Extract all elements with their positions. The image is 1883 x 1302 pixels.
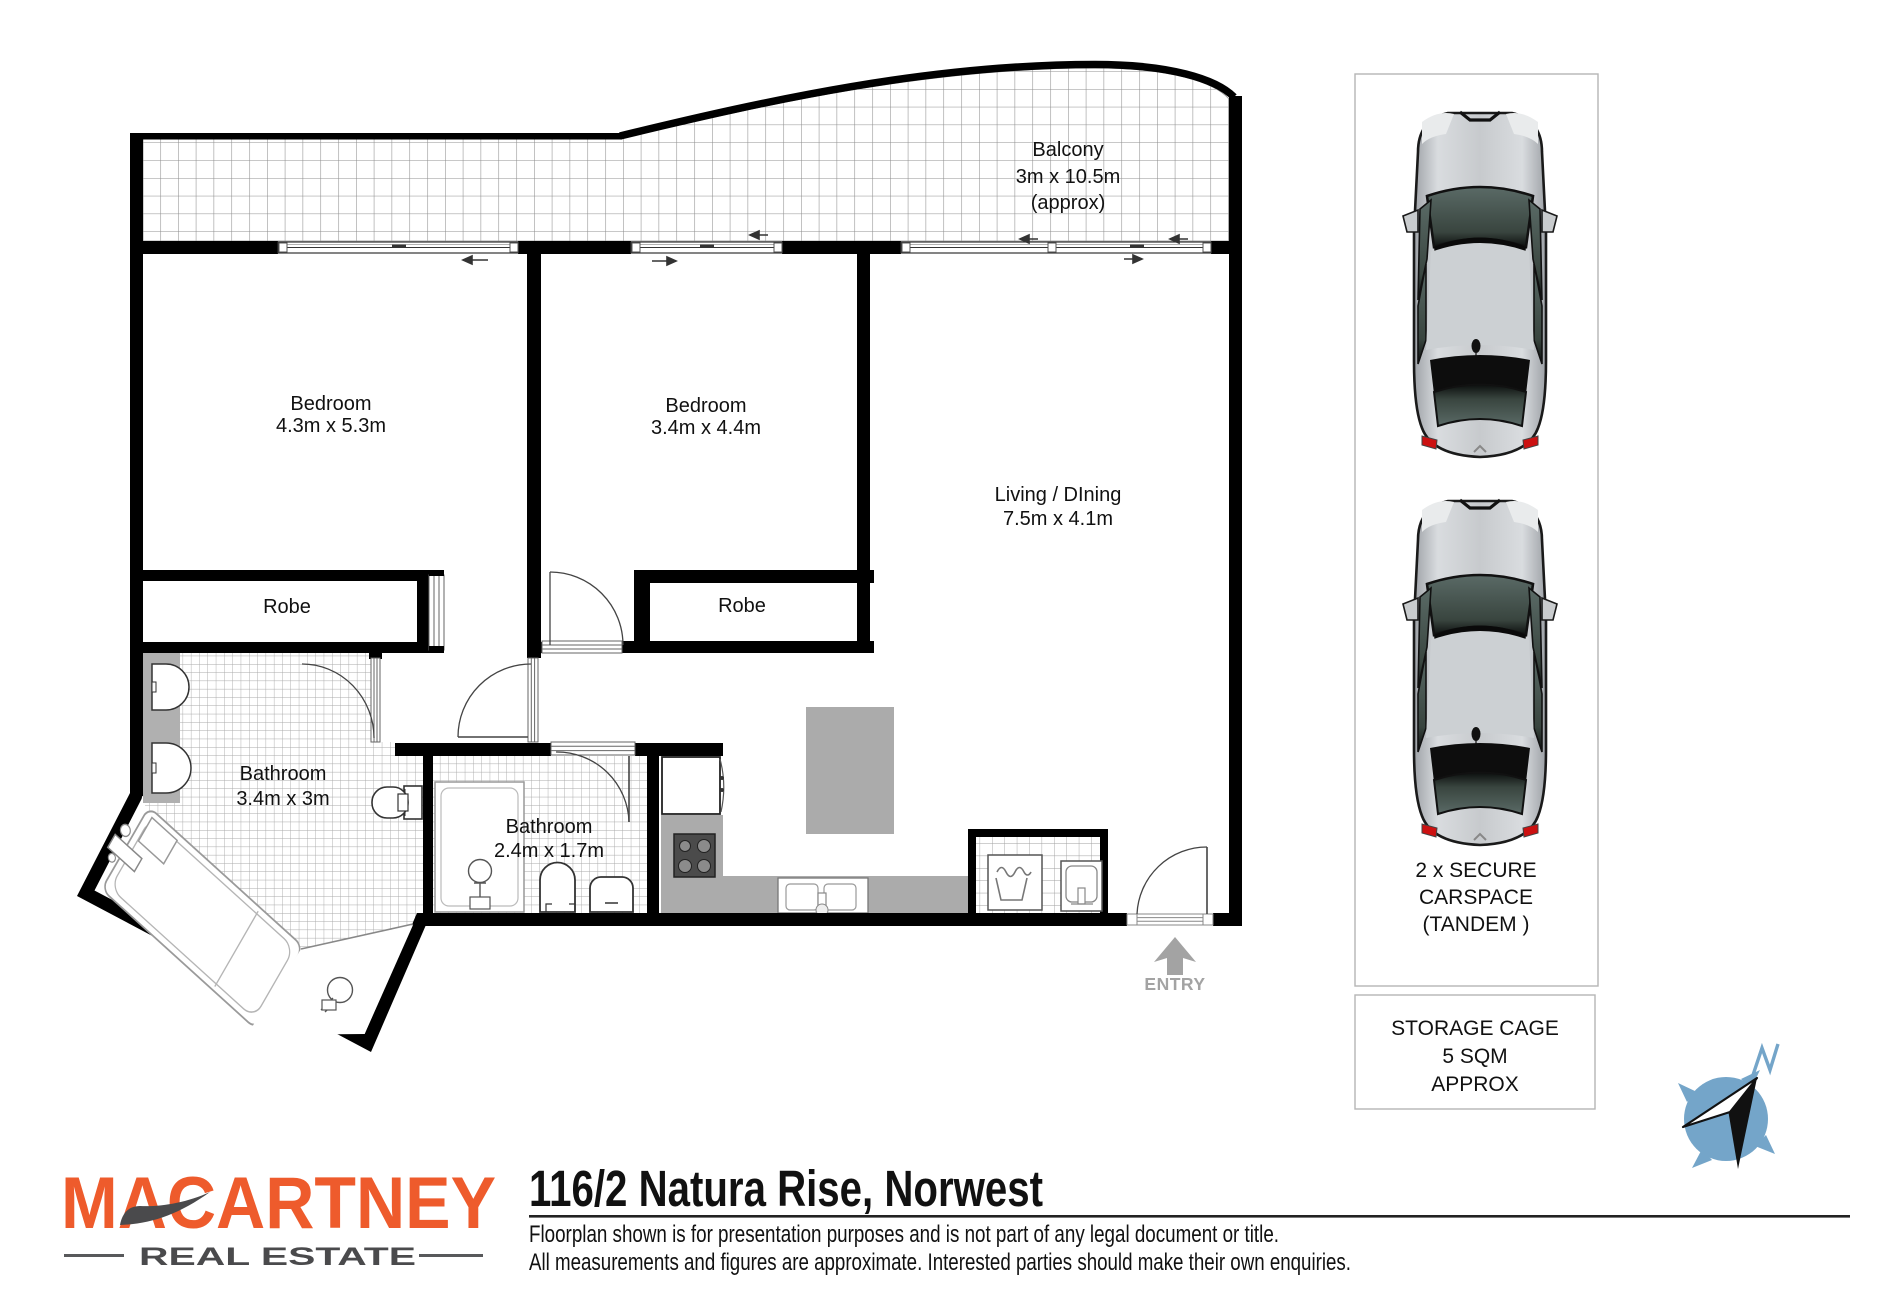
svg-text:5 SQM: 5 SQM [1442, 1045, 1507, 1068]
svg-text:3m x 10.5m: 3m x 10.5m [1016, 166, 1120, 188]
svg-text:Bedroom: Bedroom [665, 395, 746, 417]
svg-text:7.5m x 4.1m: 7.5m x 4.1m [1003, 508, 1113, 530]
svg-text:ENTRY: ENTRY [1144, 974, 1205, 994]
svg-text:2.4m x 1.7m: 2.4m x 1.7m [494, 840, 604, 862]
svg-text:4.3m x 5.3m: 4.3m x 5.3m [276, 415, 386, 437]
svg-text:Floorplan shown is for present: Floorplan shown is for presentation purp… [529, 1221, 1279, 1248]
svg-text:Bathroom: Bathroom [506, 816, 593, 838]
svg-text:2 x SECURE: 2 x SECURE [1415, 859, 1536, 882]
svg-text:116/2 Natura Rise, Norwest: 116/2 Natura Rise, Norwest [529, 1160, 1043, 1217]
svg-text:Bedroom: Bedroom [290, 393, 371, 415]
svg-text:Living / DIning: Living / DIning [995, 484, 1122, 506]
svg-text:(approx): (approx) [1031, 192, 1105, 214]
svg-text:MACARTNEY: MACARTNEY [61, 1163, 496, 1244]
svg-text:CARSPACE: CARSPACE [1419, 886, 1533, 909]
svg-text:(TANDEM ): (TANDEM ) [1423, 913, 1530, 936]
svg-text:REAL ESTATE: REAL ESTATE [139, 1243, 416, 1271]
svg-text:STORAGE CAGE: STORAGE CAGE [1391, 1017, 1559, 1040]
svg-text:3.4m x 3m: 3.4m x 3m [236, 788, 329, 810]
svg-text:Robe: Robe [263, 596, 311, 618]
svg-text:Robe: Robe [718, 595, 766, 617]
svg-text:Bathroom: Bathroom [240, 763, 327, 785]
svg-text:3.4m x 4.4m: 3.4m x 4.4m [651, 417, 761, 439]
svg-text:Balcony: Balcony [1032, 139, 1103, 161]
svg-text:All measurements and figures a: All measurements and figures are approxi… [529, 1249, 1351, 1276]
svg-text:APPROX: APPROX [1431, 1073, 1519, 1096]
